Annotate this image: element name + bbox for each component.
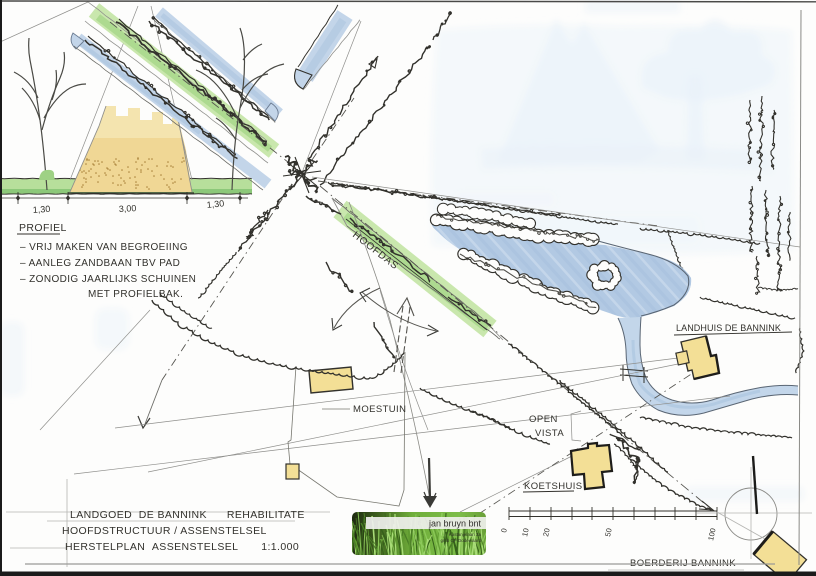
svg-text:jan bruyn bnt: jan bruyn bnt xyxy=(428,519,482,529)
svg-text:– AANLEG ZANDBAAN TBV PAD: – AANLEG ZANDBAAN TBV PAD xyxy=(20,258,180,269)
svg-text:3,00: 3,00 xyxy=(119,203,137,214)
svg-text:gmb CP Dodewaard: gmb CP Dodewaard xyxy=(441,538,482,543)
svg-text:MET PROFIELBAK.: MET PROFIELBAK. xyxy=(88,289,183,300)
svg-text:LANDHUIS DE BANNINK: LANDHUIS DE BANNINK xyxy=(676,323,781,333)
svg-text:LANDGOED DE BANNINK REHA: LANDGOED DE BANNINK REHABILITATE xyxy=(70,509,305,521)
svg-text:VISTA: VISTA xyxy=(535,428,564,439)
svg-text:MOESTUIN: MOESTUIN xyxy=(353,404,406,415)
svg-text:HOOFDSTRUCTUUR / ASSENSTELSEL: HOOFDSTRUCTUUR / ASSENSTELSEL xyxy=(62,525,267,537)
svg-text:OPEN: OPEN xyxy=(529,414,558,425)
svg-text:Kastanjelaan 3a: Kastanjelaan 3a xyxy=(449,532,482,537)
svg-text:1,30: 1,30 xyxy=(206,198,224,210)
svg-text:1,30: 1,30 xyxy=(32,204,50,215)
svg-text:HERSTELPLAN ASSENSTELSEL: HERSTELPLAN ASSENSTELSEL 1:1.000 xyxy=(65,541,299,553)
svg-text:PROFIEL: PROFIEL xyxy=(19,222,67,234)
svg-text:– ZONODIG JAARLIJKS SCHUINEN: – ZONODIG JAARLIJKS SCHUINEN xyxy=(20,274,196,285)
svg-text:– VRIJ MAKEN VAN BEGROEIING: – VRIJ MAKEN VAN BEGROEIING xyxy=(20,242,188,253)
svg-text:KOETSHUIS: KOETSHUIS xyxy=(524,481,583,492)
